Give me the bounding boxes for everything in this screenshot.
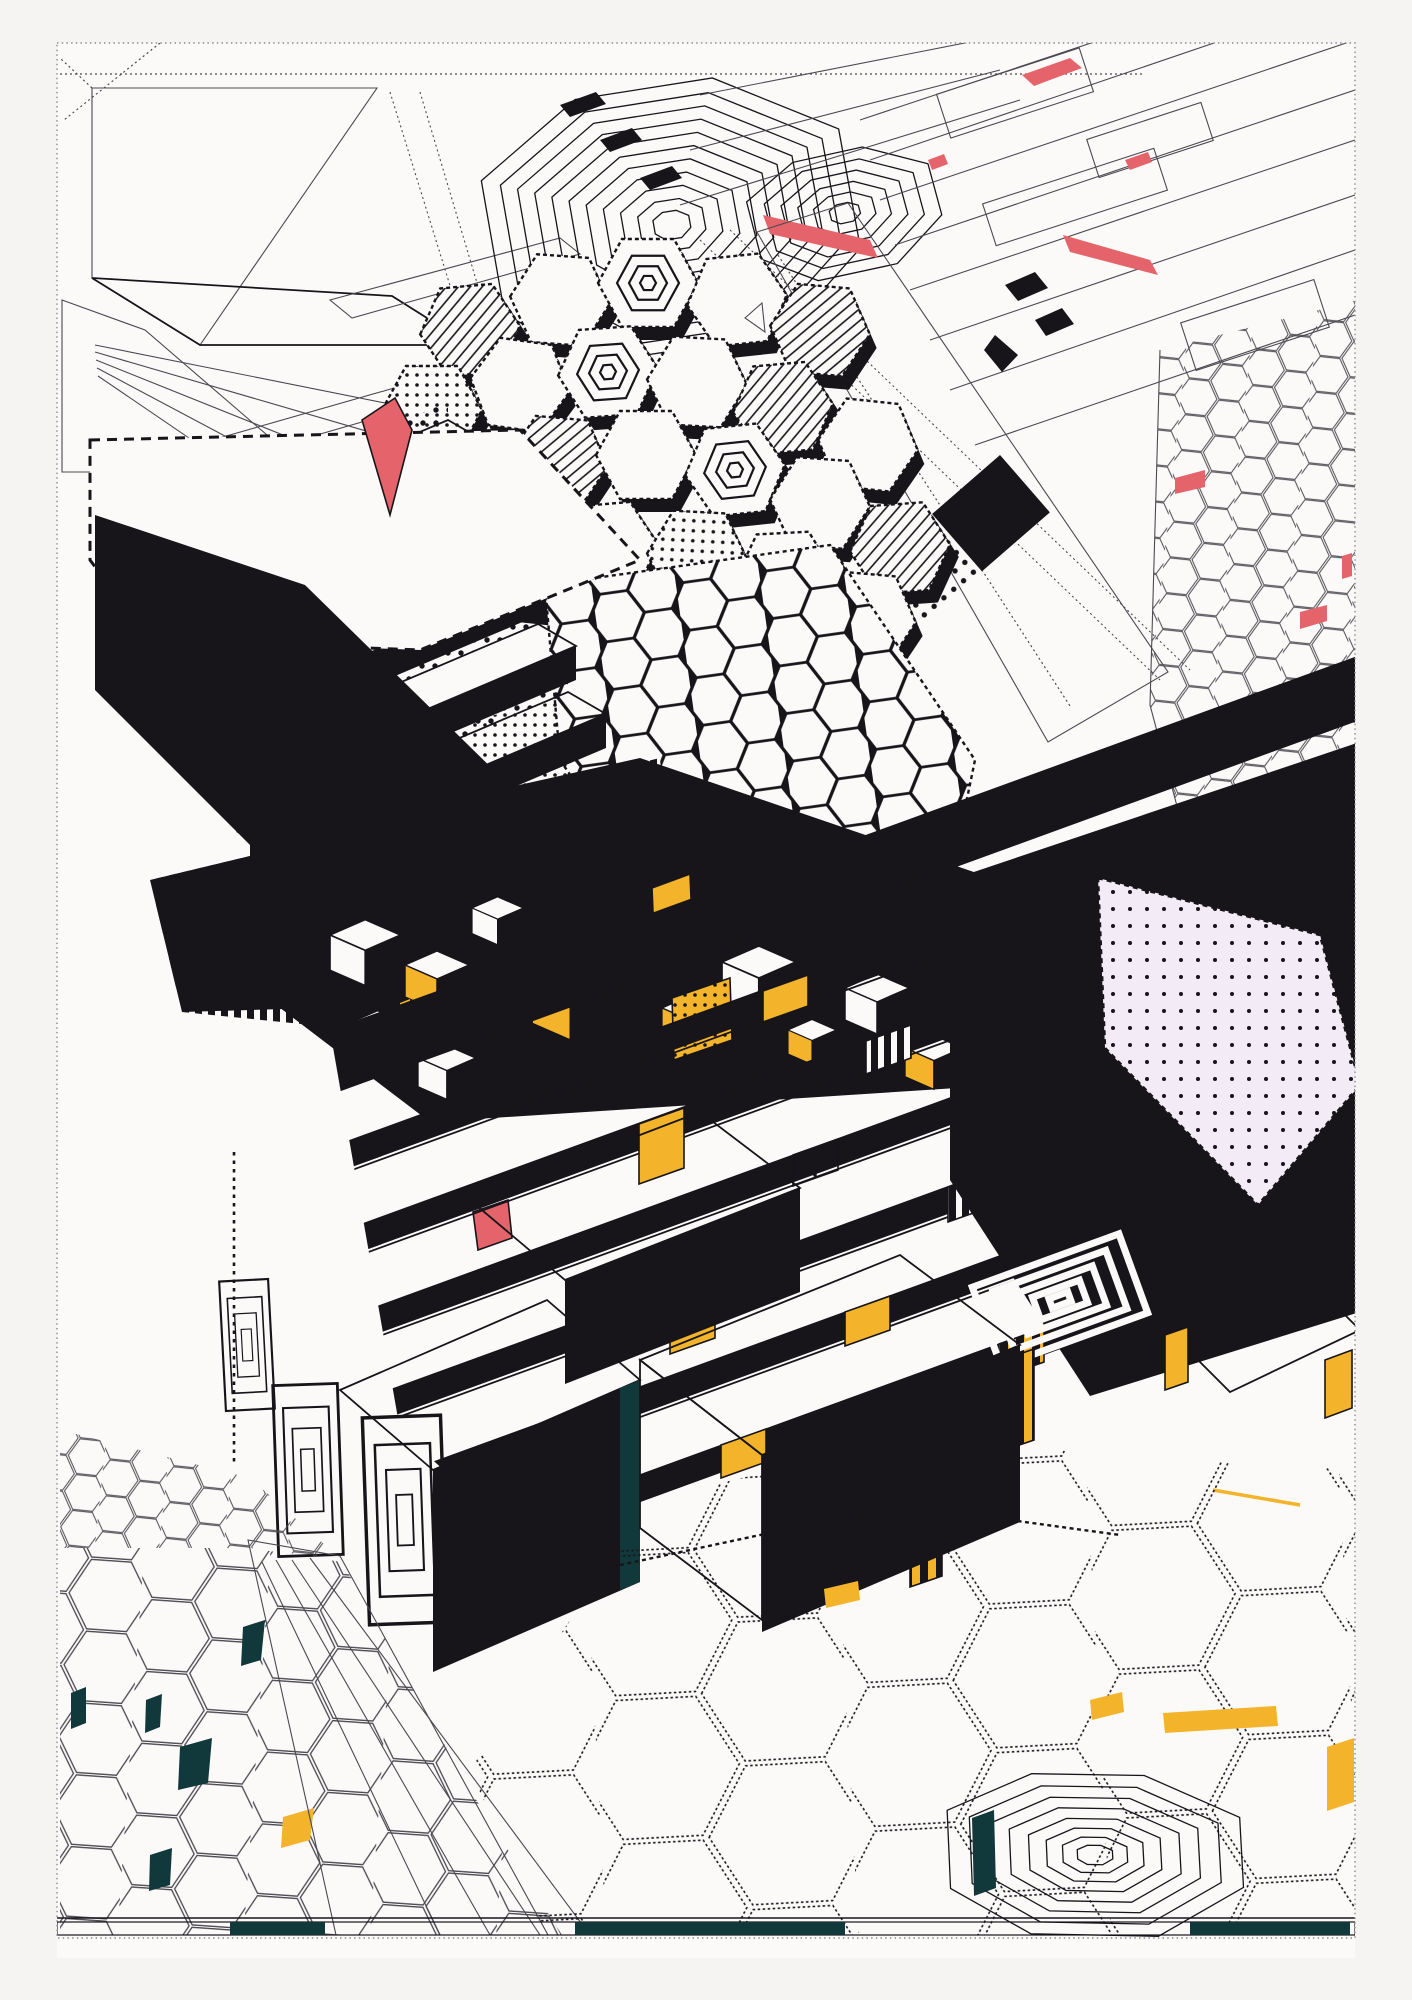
- teal-accent-tiles: [972, 1810, 996, 1896]
- yellow-accent-rightmass: [1325, 1350, 1352, 1418]
- generative-artwork: [0, 0, 1412, 2000]
- art-print-page: [0, 0, 1412, 2000]
